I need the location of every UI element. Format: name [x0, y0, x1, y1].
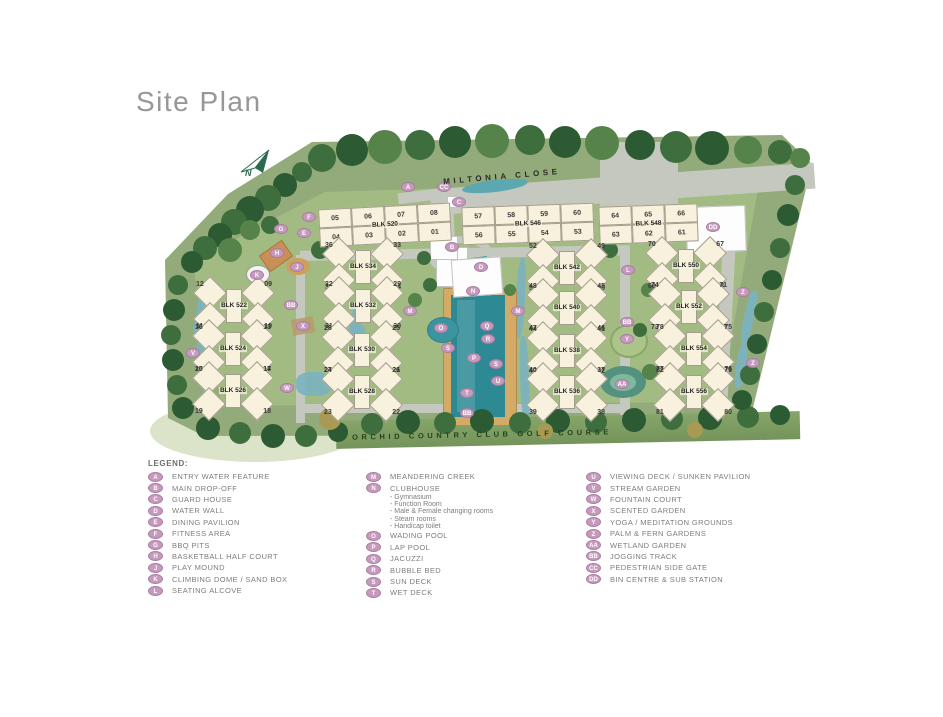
tree	[161, 325, 181, 345]
legend-key-badge: X	[586, 506, 601, 516]
tree	[167, 375, 187, 395]
unit-number: 16	[195, 324, 203, 331]
legend-key-badge: M	[366, 472, 381, 482]
block-blk-528: 24212322BLK 528	[314, 366, 410, 418]
legend-column-2: MMEANDERING CREEKNCLUBHOUSE- Gymnasium- …	[366, 471, 493, 599]
tree	[336, 134, 368, 166]
unit-number: 59	[540, 210, 548, 217]
legend-item-label: CLUBHOUSE	[390, 484, 440, 493]
tree	[770, 238, 790, 258]
legend-item-label: SEATING ALCOVE	[172, 586, 242, 595]
unit-number: 39	[529, 409, 537, 416]
unit-number: 67	[716, 241, 724, 248]
legend-item-g: GBBQ PITS	[148, 539, 287, 550]
unit-number: 19	[195, 408, 203, 415]
tree	[163, 299, 185, 321]
legend-item-j: JPLAY MOUND	[148, 562, 287, 573]
legend-key-badge: V	[586, 483, 601, 493]
legend-item-label: BASKETBALL HALF COURT	[172, 552, 278, 561]
building-unit: 08	[417, 203, 451, 224]
unit-number: 53	[574, 228, 582, 235]
unit-number: 45	[597, 283, 605, 290]
legend-sub-item: - Handicap toilet	[390, 523, 493, 530]
tree	[625, 130, 655, 160]
block-label: BLK 546	[514, 220, 542, 228]
building-unit: 64	[598, 206, 632, 226]
legend-item-label: FITNESS AREA	[172, 529, 231, 538]
legend-sub-item: - Male & Female changing rooms	[390, 508, 493, 515]
map-marker-c: C	[452, 197, 466, 207]
legend-item-r: RBUBBLE BED	[366, 564, 493, 575]
block-label: BLK 540	[553, 304, 581, 311]
tree	[734, 136, 762, 164]
tree	[585, 126, 619, 160]
tree	[762, 270, 782, 290]
unit-number: 25	[392, 325, 400, 332]
legend-item-u: UVIEWING DECK / SUNKEN PAVILION	[586, 471, 751, 482]
tree	[515, 125, 545, 155]
map-marker-t: T	[460, 388, 474, 398]
legend-key-badge: B	[148, 483, 163, 493]
tree	[240, 220, 260, 240]
legend-key-badge: L	[148, 586, 163, 596]
building-unit: 66	[664, 203, 698, 223]
map-marker-dd: DD	[706, 222, 720, 232]
legend-item-y: YYOGA / MEDITATION GROUNDS	[586, 517, 751, 528]
block-label: BLK 538	[553, 347, 581, 354]
map-marker-bb: BB	[284, 300, 298, 310]
tree	[622, 408, 646, 432]
legend-item-label: WET DECK	[390, 588, 433, 597]
tree	[229, 422, 251, 444]
legend-item-label: WETLAND GARDEN	[610, 541, 686, 550]
map-marker-v: V	[186, 348, 200, 358]
legend-sub-item: - Steam rooms	[390, 516, 493, 523]
tree	[417, 251, 431, 265]
map-marker-m: M	[511, 306, 525, 316]
legend-item-w: WFOUNTAIN COURT	[586, 494, 751, 505]
unit-number: 44	[529, 326, 537, 333]
legend-key-badge: K	[148, 574, 163, 584]
legend-item-label: WADING POOL	[390, 531, 448, 540]
map-marker-o: O	[434, 323, 448, 333]
unit-number: 12	[196, 281, 204, 288]
unit-number: 57	[474, 213, 482, 220]
block-label: BLK 532	[349, 302, 377, 309]
map-marker-s: S	[489, 359, 503, 369]
tree	[768, 140, 792, 164]
block-label: BLK 526	[219, 387, 247, 394]
legend-sub-item: - Gymnasium	[390, 494, 493, 501]
unit-number: 20	[195, 366, 203, 373]
legend-key-badge: T	[366, 588, 381, 598]
tree	[504, 284, 516, 296]
legend-item-label: VIEWING DECK / SUNKEN PAVILION	[610, 472, 751, 481]
block-label: BLK 550	[672, 262, 700, 269]
road-segment	[296, 255, 305, 423]
unit-number: 37	[597, 367, 605, 374]
legend-key-badge: Q	[366, 554, 381, 564]
legend-item-e: EDINING PAVILION	[148, 517, 287, 528]
legend-item-z: ZPALM & FERN GARDENS	[586, 528, 751, 539]
north-arrow-icon: N	[238, 146, 276, 178]
unit-number: 21	[392, 367, 400, 374]
unit-number: 60	[573, 209, 581, 216]
legend-item-a: AENTRY WATER FEATURE	[148, 471, 287, 482]
building-unit: 56	[462, 225, 496, 245]
legend-item-label: CLIMBING DOME / SAND BOX	[172, 575, 287, 584]
tree	[770, 405, 790, 425]
unit-number: 54	[541, 229, 549, 236]
legend-item-v: VSTREAM GARDEN	[586, 482, 751, 493]
legend-item-label: MAIN DROP-OFF	[172, 484, 237, 493]
tree	[218, 238, 242, 262]
legend-item-label: SCENTED GARDEN	[610, 506, 686, 515]
north-label: N	[245, 168, 252, 178]
tree	[754, 302, 774, 322]
block-label: BLK 542	[553, 264, 581, 271]
tree	[295, 425, 317, 447]
map-marker-g: G	[274, 224, 288, 234]
tree	[747, 334, 767, 354]
legend-item-label: BIN CENTRE & SUB STATION	[610, 575, 723, 584]
tree	[368, 130, 402, 164]
legend-item-label: JACUZZI	[390, 554, 424, 563]
unit-number: 38	[597, 409, 605, 416]
legend-item-q: QJACUZZI	[366, 553, 493, 564]
block-label: BLK 556	[680, 388, 708, 395]
legend-item-l: LSEATING ALCOVE	[148, 585, 287, 596]
map-marker-r: R	[481, 334, 495, 344]
block-label: BLK 534	[349, 263, 377, 270]
block-label: BLK 522	[220, 302, 248, 309]
unit-number: 63	[611, 231, 619, 238]
legend-item-b: BMAIN DROP-OFF	[148, 482, 287, 493]
legend-key-badge: AA	[586, 540, 601, 550]
legend-item-label: BBQ PITS	[172, 541, 210, 550]
legend-column-1: AENTRY WATER FEATUREBMAIN DROP-OFFCGUARD…	[148, 471, 287, 596]
legend-item-label: STREAM GARDEN	[610, 484, 681, 493]
unit-number: 22	[392, 409, 400, 416]
map-marker-h: H	[270, 248, 284, 258]
map-marker-k: K	[250, 270, 264, 280]
legend-key-badge: CC	[586, 563, 601, 573]
legend-item-d: DWATER WALL	[148, 505, 287, 516]
unit-number: 06	[364, 213, 372, 220]
map-marker-w: W	[280, 383, 294, 393]
legend-item-label: PALM & FERN GARDENS	[610, 529, 706, 538]
map-marker-x: X	[296, 321, 310, 331]
legend-item-x: XSCENTED GARDEN	[586, 505, 751, 516]
site-plan-page: Site Plan 0506070804030201BLK 5205758596…	[0, 0, 943, 717]
legend-item-n: NCLUBHOUSE	[366, 482, 493, 493]
unit-number: 71	[719, 282, 727, 289]
unit-number: 65	[644, 211, 652, 218]
legend-item-label: BUBBLE BED	[390, 566, 441, 575]
legend-key-badge: S	[366, 577, 381, 587]
tree	[777, 204, 799, 226]
unit-number: 08	[430, 209, 438, 216]
block-blk-548: 646566636261BLK 548	[598, 203, 698, 244]
unit-number: 33	[393, 242, 401, 249]
unit-number: 02	[398, 230, 406, 237]
unit-number: 74	[651, 282, 659, 289]
unit-number: 18	[263, 408, 271, 415]
tree	[168, 275, 188, 295]
tree	[790, 148, 810, 168]
legend-item-dd: DDBIN CENTRE & SUB STATION	[586, 574, 751, 585]
unit-number: 41	[597, 326, 605, 333]
legend-item-aa: AAWETLAND GARDEN	[586, 539, 751, 550]
map-marker-z: Z	[736, 287, 750, 297]
legend-key-badge: U	[586, 472, 601, 482]
tree	[162, 349, 184, 371]
map-marker-d: D	[474, 262, 488, 272]
tree	[695, 131, 729, 165]
legend-item-c: CGUARD HOUSE	[148, 494, 287, 505]
map-marker-j: J	[290, 262, 304, 272]
tree	[261, 424, 285, 448]
legend-item-label: YOGA / MEDITATION GROUNDS	[610, 518, 733, 527]
legend-key-badge: J	[148, 563, 163, 573]
legend-key-badge: O	[366, 531, 381, 541]
legend-key-badge: DD	[586, 574, 601, 584]
unit-number: 58	[507, 211, 515, 218]
map-marker-aa: AA	[615, 379, 629, 389]
map-marker-b: B	[445, 242, 459, 252]
legend-item-label: MEANDERING CREEK	[390, 472, 475, 481]
unit-number: 49	[597, 243, 605, 250]
legend-item-s: SSUN DECK	[366, 576, 493, 587]
block-blk-536: 40373938BLK 536	[519, 366, 615, 418]
map-marker-n: N	[466, 286, 480, 296]
legend-item-label: LAP POOL	[390, 543, 430, 552]
legend-key-badge: P	[366, 542, 381, 552]
legend-key-badge: R	[366, 565, 381, 575]
legend-key-badge: E	[148, 517, 163, 527]
unit-number: 40	[529, 367, 537, 374]
legend-item-label: GUARD HOUSE	[172, 495, 232, 504]
legend-key-badge: H	[148, 551, 163, 561]
legend-key-badge: N	[366, 483, 381, 493]
unit-number: 24	[324, 367, 332, 374]
map-marker-z: Z	[746, 358, 760, 368]
legend-item-p: PLAP POOL	[366, 542, 493, 553]
legend-key-badge: Z	[586, 529, 601, 539]
legend-key-badge: Y	[586, 517, 601, 527]
tree	[687, 422, 703, 438]
map-marker-bb: BB	[460, 408, 474, 418]
building-unit: 60	[560, 203, 594, 223]
tree	[785, 175, 805, 195]
map-marker-f: F	[302, 212, 316, 222]
map-marker-u: U	[491, 376, 505, 386]
unit-number: 78	[656, 324, 664, 331]
tree	[405, 130, 435, 160]
block-blk-546: 5758596056555453BLK 546	[461, 203, 594, 246]
unit-number: 09	[264, 281, 272, 288]
tree	[475, 124, 509, 158]
legend-column-3: UVIEWING DECK / SUNKEN PAVILIONVSTREAM G…	[586, 471, 751, 585]
tree	[439, 126, 471, 158]
map-marker-m: M	[403, 306, 417, 316]
unit-number: 82	[656, 367, 664, 374]
map-marker-q: Q	[480, 321, 494, 331]
legend-item-label: WATER WALL	[172, 506, 224, 515]
legend-key-badge: W	[586, 494, 601, 504]
map-marker-e: E	[297, 228, 311, 238]
site-plan-map: 0506070804030201BLK 5205758596056555453B…	[0, 0, 943, 717]
unit-number: 81	[656, 409, 664, 416]
unit-number: 03	[365, 232, 373, 239]
legend-item-m: MMEANDERING CREEK	[366, 471, 493, 482]
unit-number: 79	[724, 367, 732, 374]
unit-number: 75	[724, 324, 732, 331]
map-marker-p: P	[467, 353, 481, 363]
block-label: BLK 530	[348, 346, 376, 353]
legend-item-label: DINING PAVILION	[172, 518, 240, 527]
block-label: BLK 554	[680, 345, 708, 352]
legend-item-bb: BBJOGGING TRACK	[586, 551, 751, 562]
tree	[549, 126, 581, 158]
unit-number: 52	[529, 243, 537, 250]
unit-number: 05	[331, 214, 339, 221]
tree	[660, 131, 692, 163]
unit-number: 17	[263, 366, 271, 373]
block-label: BLK 552	[675, 303, 703, 310]
block-blk-556: 82798180BLK 556	[646, 366, 742, 418]
unit-number: 32	[325, 281, 333, 288]
unit-number: 56	[475, 232, 483, 239]
legend-key-badge: F	[148, 529, 163, 539]
legend-item-k: KCLIMBING DOME / SAND BOX	[148, 574, 287, 585]
legend-item-o: OWADING POOL	[366, 530, 493, 541]
legend-key-badge: G	[148, 540, 163, 550]
map-marker-bb: BB	[620, 317, 634, 327]
legend-key-badge: D	[148, 506, 163, 516]
unit-number: 55	[508, 230, 516, 237]
unit-number: 62	[644, 230, 652, 237]
unit-number: 64	[611, 212, 619, 219]
legend-item-label: PLAY MOUND	[172, 563, 225, 572]
legend-key-badge: A	[148, 472, 163, 482]
legend-sub-item: - Function Room	[390, 501, 493, 508]
tree	[181, 251, 203, 273]
unit-number: 80	[724, 409, 732, 416]
block-label: BLK 548	[634, 220, 662, 228]
legend-item-cc: CCPEDESTRIAN SIDE GATE	[586, 562, 751, 573]
building-unit: 01	[418, 222, 452, 243]
unit-number: 66	[677, 210, 685, 217]
unit-number: 13	[263, 324, 271, 331]
block-label: BLK 536	[553, 388, 581, 395]
building-unit: 05	[318, 208, 352, 229]
legend-key-badge: C	[148, 494, 163, 504]
unit-number: 48	[529, 283, 537, 290]
tree	[423, 278, 437, 292]
block-blk-526: 20171918BLK 526	[185, 365, 281, 417]
tree	[308, 144, 336, 172]
unit-number: 70	[648, 241, 656, 248]
unit-number: 29	[393, 281, 401, 288]
map-marker-s: S	[441, 343, 455, 353]
legend-item-f: FFITNESS AREA	[148, 528, 287, 539]
building-unit: 57	[461, 206, 495, 226]
block-label: BLK 520	[371, 220, 399, 228]
legend-item-label: PEDESTRIAN SIDE GATE	[610, 563, 707, 572]
legend-item-label: SUN DECK	[390, 577, 432, 586]
unit-number: 36	[325, 242, 333, 249]
legend-heading: LEGEND:	[148, 459, 188, 468]
map-marker-a: A	[401, 182, 415, 192]
legend-item-label: ENTRY WATER FEATURE	[172, 472, 270, 481]
unit-number: 23	[324, 409, 332, 416]
legend-item-label: JOGGING TRACK	[610, 552, 677, 561]
block-label: BLK 524	[219, 345, 247, 352]
unit-number: 28	[324, 325, 332, 332]
unit-number: 01	[431, 228, 439, 235]
unit-number: 07	[397, 211, 405, 218]
unit-number: 61	[677, 229, 685, 236]
legend-item-label: FOUNTAIN COURT	[610, 495, 682, 504]
map-marker-l: L	[621, 265, 635, 275]
block-label: BLK 528	[348, 388, 376, 395]
legend-item-h: HBASKETBALL HALF COURT	[148, 551, 287, 562]
map-marker-y: Y	[620, 334, 634, 344]
tree	[740, 365, 760, 385]
legend-key-badge: BB	[586, 551, 601, 561]
legend-item-t: TWET DECK	[366, 587, 493, 598]
